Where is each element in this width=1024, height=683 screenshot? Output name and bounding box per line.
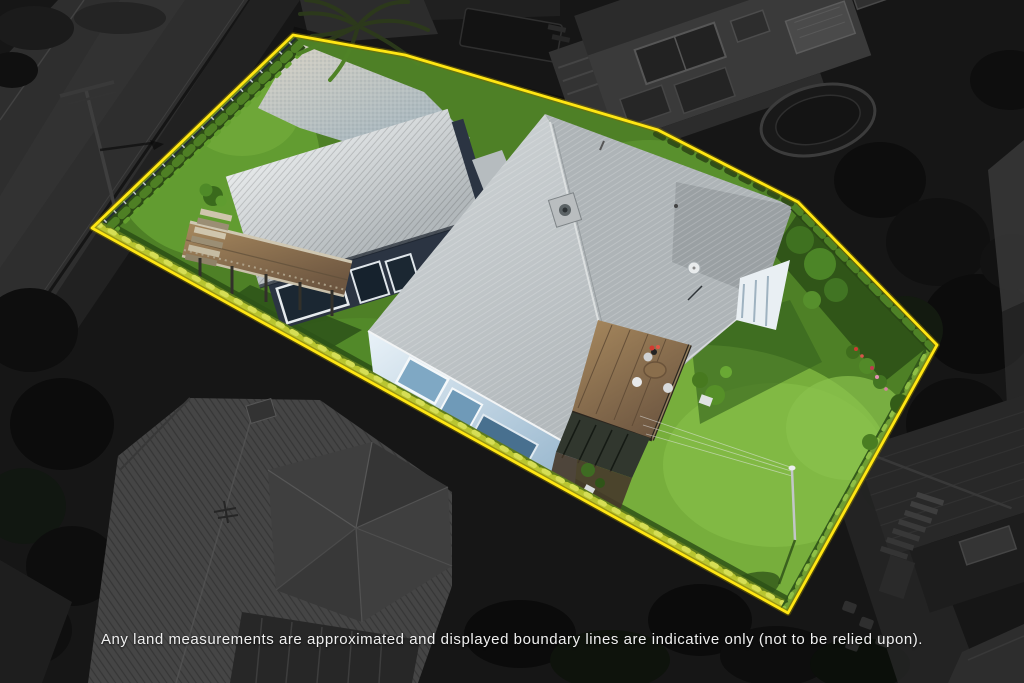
aerial-photo-frame: Any land measurements are approximated a…: [0, 0, 1024, 683]
disclaimer-text: Any land measurements are approximated a…: [0, 631, 1024, 649]
outdoor-table: [644, 362, 666, 378]
outdoor-chair: [632, 377, 642, 387]
potted-plant: [581, 463, 595, 477]
flower-pot: [650, 346, 655, 351]
outdoor-chair: [663, 383, 673, 393]
aerial-photograph: [0, 0, 1024, 683]
outdoor-chair: [644, 353, 653, 362]
